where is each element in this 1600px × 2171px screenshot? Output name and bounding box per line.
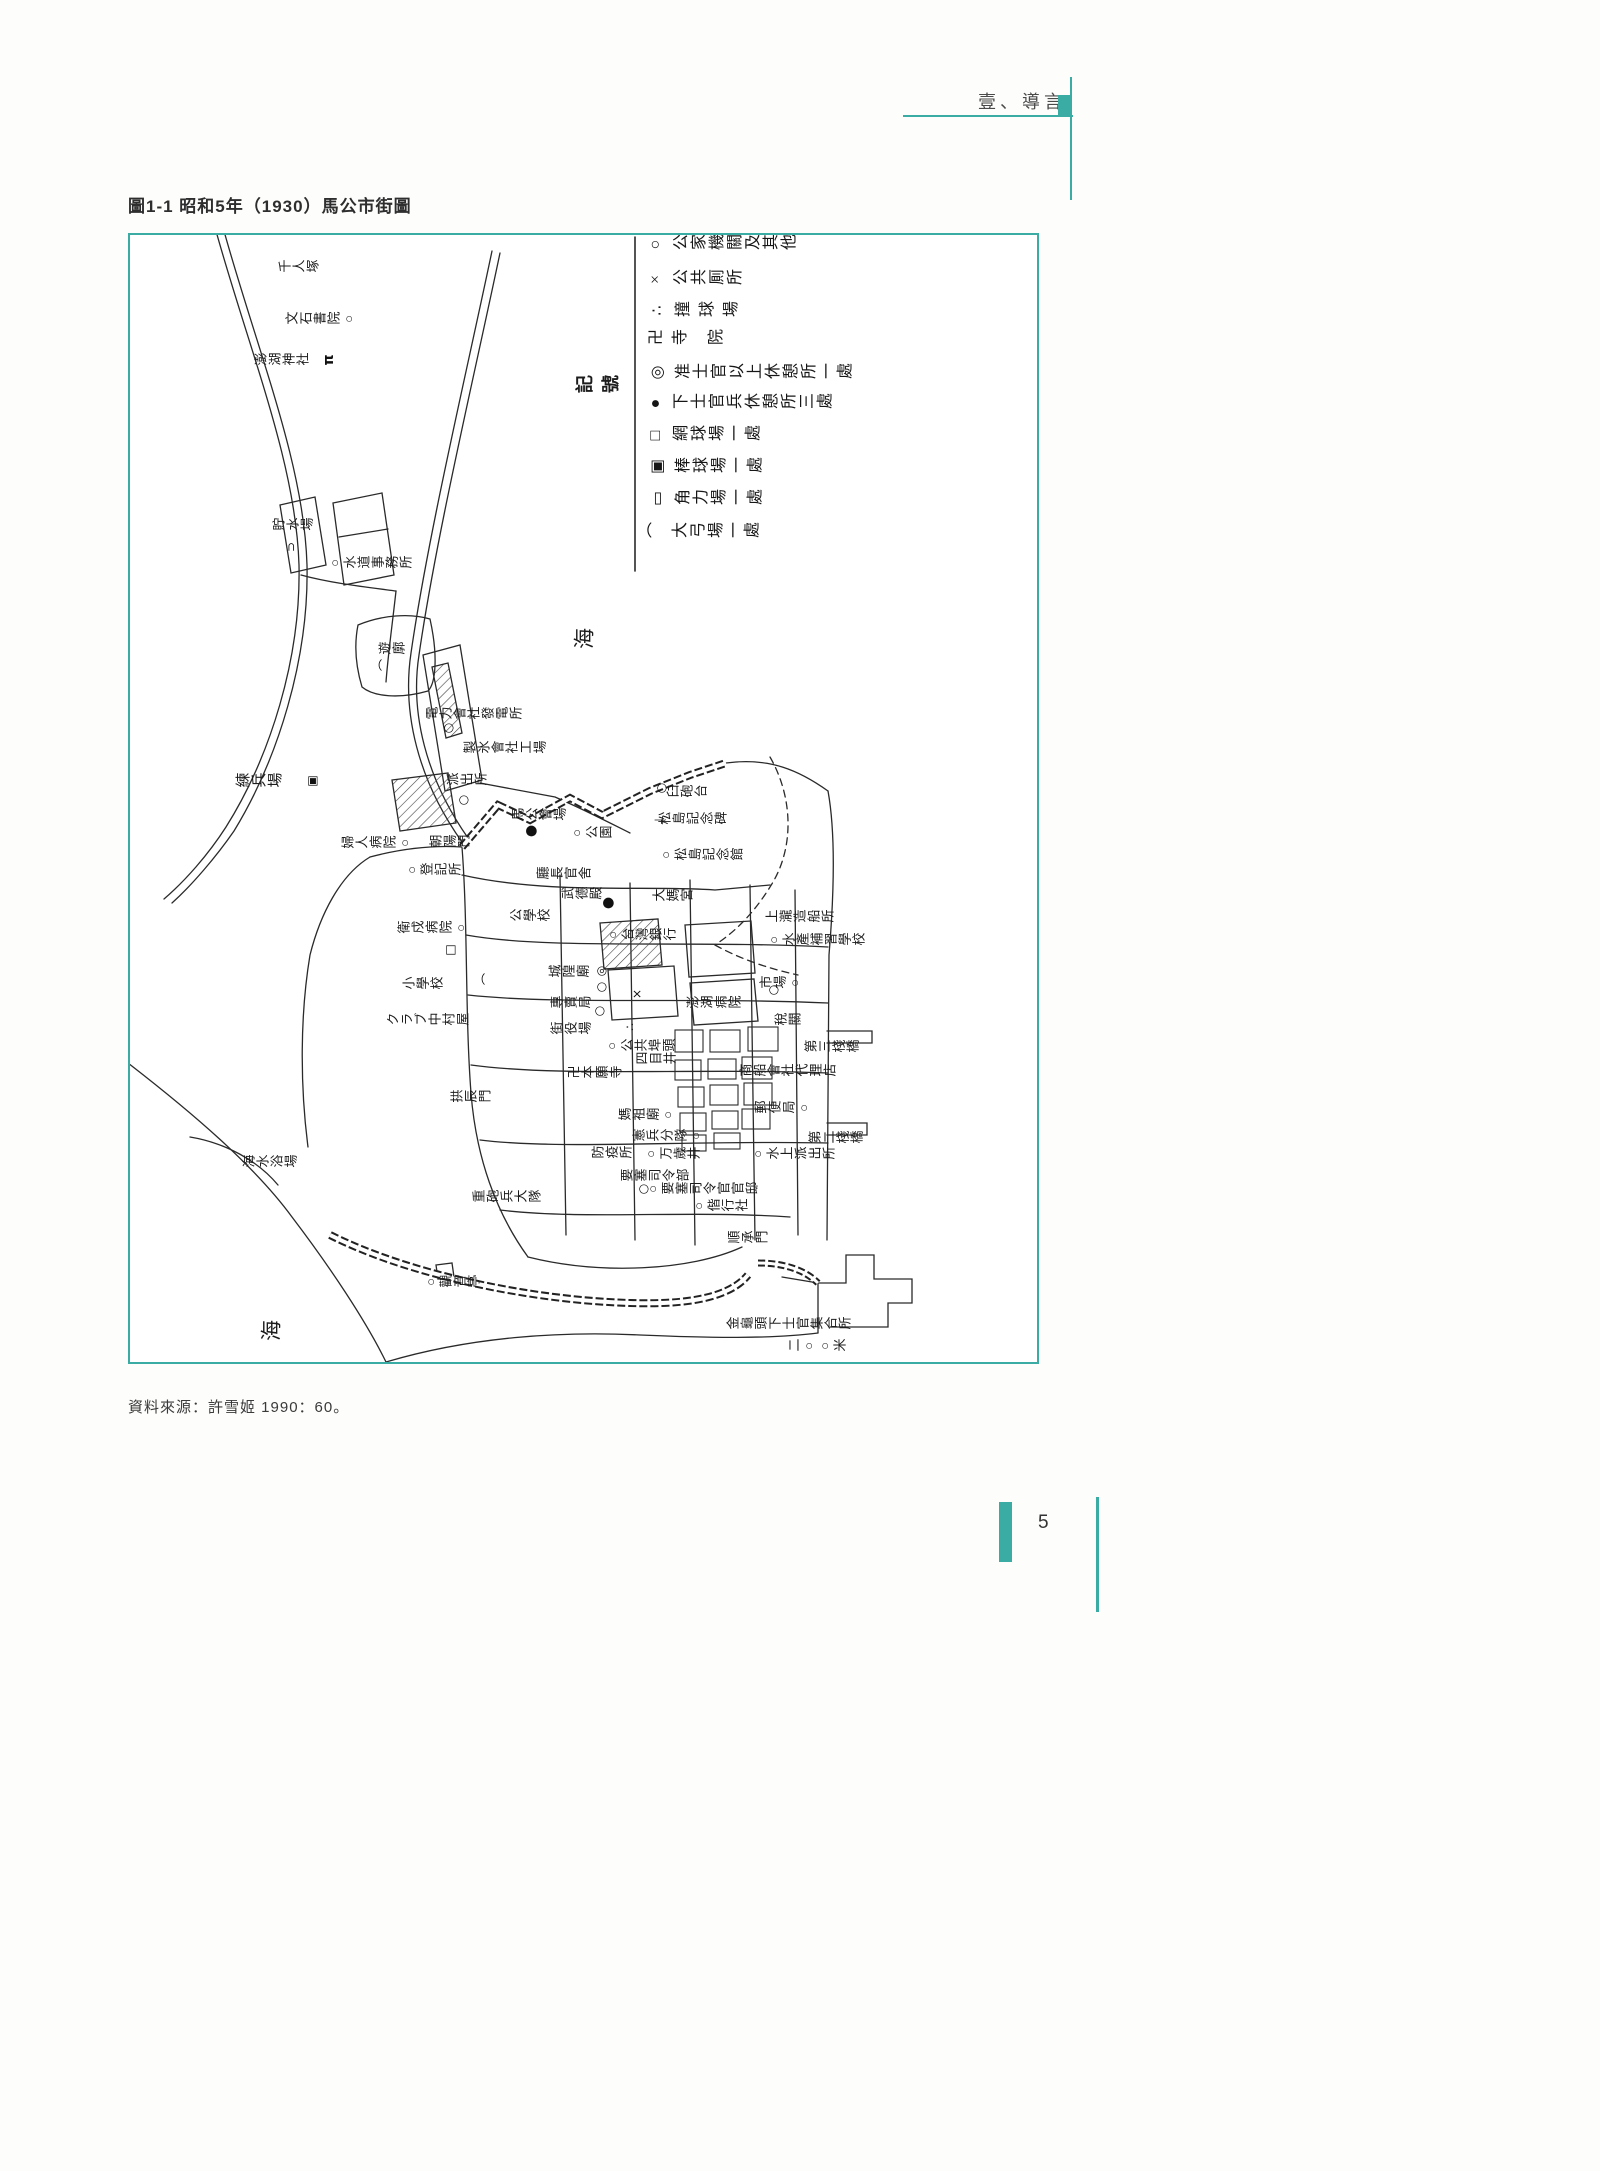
map-place-label: 練兵場 (235, 775, 283, 790)
map-place-label: 武德殿 (561, 888, 603, 901)
map-place-label: ○台灣銀行 (605, 929, 677, 942)
map-place-label: 上瀧造船所 (765, 911, 835, 924)
sqdot-map-symbol: ▣ (306, 775, 318, 786)
map-place-label: 重砲兵大隊 (472, 1191, 542, 1204)
legend-entry: ⌒ 大弓場一處 (647, 525, 761, 541)
map-place-label: 二○○米 (787, 1340, 847, 1353)
map-place-label: 松島記念碑 (658, 813, 728, 826)
header-accent-square (1058, 95, 1071, 116)
legend-entry: ○ 公家機關及其他 (647, 237, 798, 253)
figure-source: 資料來源：許雪姬 1990：60。 (128, 1396, 349, 1417)
map-place-label: ○登記所 (404, 864, 462, 877)
map-place-label: 電力會社發電所 (425, 708, 523, 721)
map-place-label: 媽祖廟○ (618, 1109, 676, 1122)
map-place-label: 廳長官舍 (536, 868, 592, 881)
map-place-label: 海 (260, 1322, 284, 1343)
legend-entry: ∴ 撞 球 場 (647, 304, 740, 320)
map-place-label: 第三棧橋 (804, 1041, 860, 1054)
map-place-label: 防疫所 (591, 1147, 633, 1160)
map-place-label: 四目井 (635, 1053, 677, 1066)
map-place-label: 派出所 (446, 774, 488, 787)
legend-entry: □ 網球場一處 (647, 428, 762, 444)
page-number: 5 (1038, 1512, 1049, 1534)
cup-map-symbol: ⊃ (285, 542, 297, 552)
x-map-symbol: × (631, 989, 643, 999)
map-place-label: 文石書院○ (285, 313, 357, 326)
map-linework (130, 235, 1037, 1362)
map-place-label: ○公園 (569, 827, 613, 840)
dot-map-symbol: ● (601, 897, 615, 909)
map-place-label: 郵便局○ (754, 1102, 812, 1115)
map-place-label: ○水道事務所 (327, 557, 413, 570)
map-place-label: 順承門 (727, 1232, 769, 1245)
map-place-label: 憲兵分隊○ (632, 1130, 704, 1143)
torii-map-symbol: π (322, 354, 336, 365)
figure-caption: 圖1-1 昭和5年（1930）馬公市街圖 (128, 192, 412, 217)
legend-entry: ▣ 棒球場一處 (647, 460, 764, 476)
map-figure-frame: 千人塚文石書院○澎湖神社貯水場○水道事務所遊廓海電力會社發電所製氷會社工場練兵場… (128, 233, 1039, 1364)
map-canvas: 千人塚文石書院○澎湖神社貯水場○水道事務所遊廓海電力會社發電所製氷會社工場練兵場… (130, 235, 1037, 1362)
map-place-label: 卍本願寺 (567, 1067, 623, 1080)
map-place-label: 專賣局 (550, 997, 592, 1010)
legend-entry: ◎ 准士官以上休憩所一處 (647, 366, 854, 382)
map-place-label: 小學校 (402, 978, 444, 991)
page-number-bar (999, 1502, 1012, 1562)
sq-map-symbol: □ (444, 944, 456, 955)
footer-rule-vertical (1096, 1497, 1099, 1612)
map-place-label: ○万歲井 (643, 1148, 701, 1161)
arc-map-symbol: ⌒ (379, 659, 391, 671)
map-place-label: 朝陽門 (429, 836, 471, 849)
map-place-label: 澎湖神社 (254, 354, 310, 367)
map-place-label: 稅關 (774, 1014, 802, 1027)
map-place-label: ○松島記念館 (658, 849, 744, 862)
header-rule-horizontal (903, 115, 1073, 117)
monument-map-symbol: ⊥ (653, 815, 665, 825)
dot-map-symbol: ● (524, 825, 538, 837)
map-place-label: 馬公會場 (511, 809, 567, 822)
circle-map-symbol: ○ (442, 723, 454, 733)
map-place-label: ○要塞司令官官邸 (645, 1183, 759, 1196)
section-header: 壹、導言 (978, 88, 1066, 114)
circle-map-symbol: ○ (637, 1184, 649, 1194)
map-place-label: 澎湖病院 (686, 997, 742, 1010)
legend-entry: 卍 寺 院 (647, 332, 725, 348)
book-page: { "accent_color": "#3aaca4", "header": {… (0, 0, 1600, 2171)
map-place-label: 大媽宮 (652, 890, 694, 903)
circle-map-symbol: ○ (457, 795, 469, 805)
map-place-label: 海 (573, 630, 597, 651)
map-place-label: 製氷會社工場 (463, 742, 547, 755)
map-place-label: ○水產補習學校 (766, 934, 866, 947)
map-place-label: ○偕行社 (691, 1200, 749, 1213)
map-place-label: 貯水場 (272, 519, 314, 532)
map-place-label: クラブ中村屋 (386, 1014, 470, 1027)
dots3-map-symbol: ∴ (624, 1023, 636, 1031)
map-place-label: 拱辰門 (450, 1091, 492, 1104)
map-place-label: ○觀音亭 (423, 1276, 481, 1289)
map-place-label: 遊廓 (378, 643, 406, 656)
legend-entry: ▭ 角力場一處 (647, 492, 764, 508)
circle-map-symbol: ○ (767, 985, 779, 995)
map-place-label: 金龜頭下士官集合所 (726, 1318, 852, 1331)
circle-map-symbol: ○ (655, 783, 667, 793)
map-place-label: 第二棧橋 (808, 1132, 864, 1145)
map-place-label: 衛戍病院○ (397, 922, 469, 935)
circle-map-symbol: ○ (593, 1006, 605, 1016)
map-place-label: 城隍廟 (548, 966, 590, 979)
map-place-label: 街役場 (550, 1023, 592, 1036)
map-place-label: 臼砲台 (666, 786, 708, 799)
map-place-label: 商船會社代理店 (739, 1065, 837, 1078)
legend-title: 記號 (575, 376, 627, 394)
arc-map-symbol: ⌒ (482, 973, 494, 985)
map-place-label: 海水浴場 (242, 1156, 298, 1169)
map-place-label: 千人塚 (278, 261, 320, 274)
dblcircle-map-symbol: ◎ (595, 966, 607, 976)
legend-entry: × 公共厠所 (647, 272, 744, 288)
legend-entry: ● 下士官兵休憩所三處 (647, 396, 834, 412)
circle-map-symbol: ○ (595, 982, 607, 992)
map-place-label: 婦人病院○ (341, 837, 413, 850)
map-place-label: ○水上派出所 (750, 1148, 836, 1161)
map-place-label: 公學校 (509, 910, 551, 923)
